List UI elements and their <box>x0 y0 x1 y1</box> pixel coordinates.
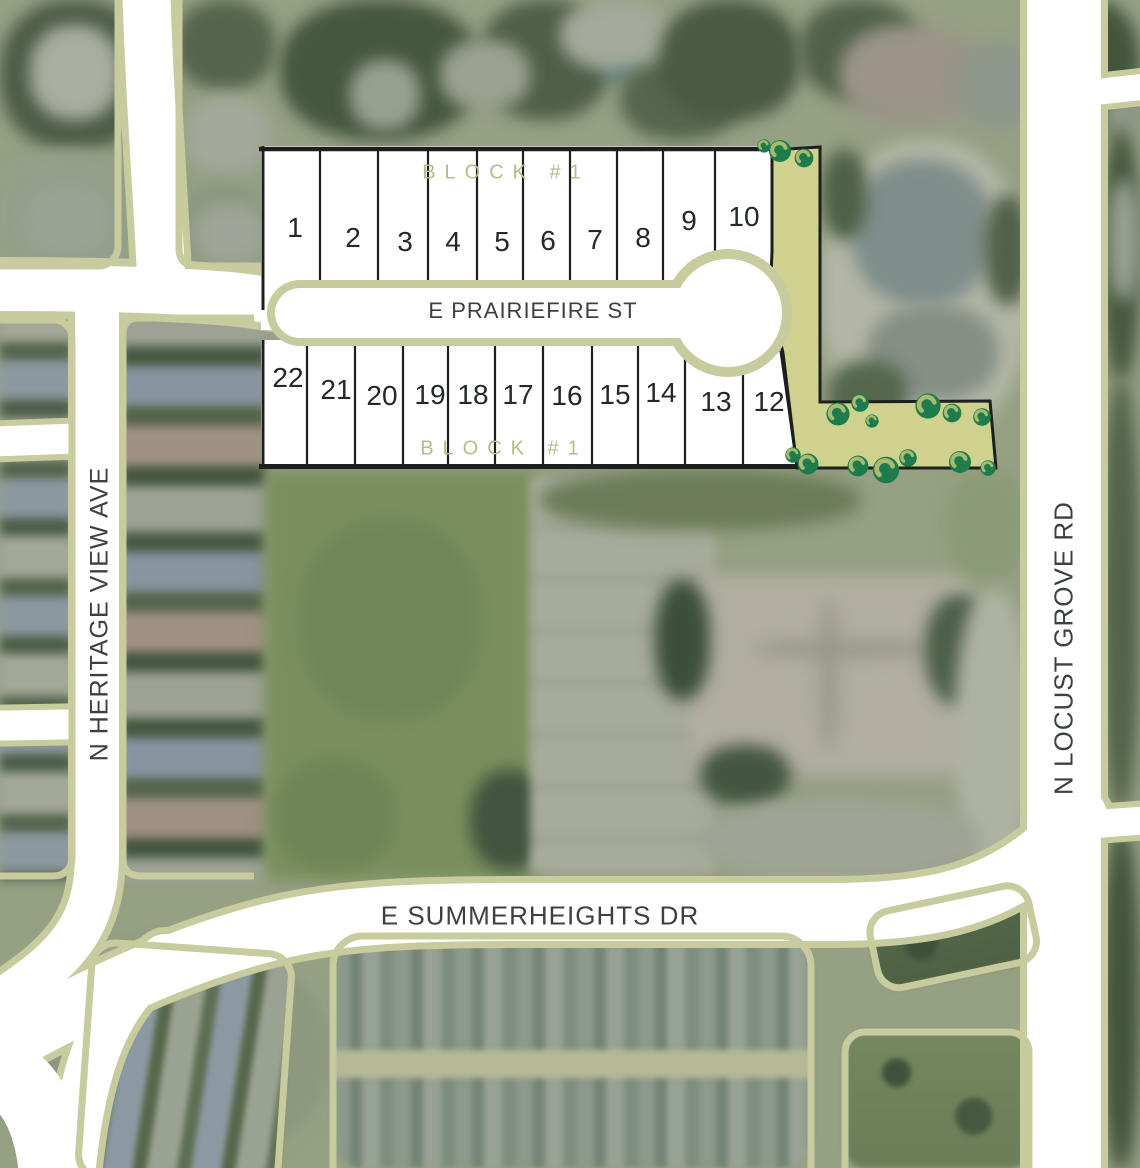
lot-number: 1 <box>287 212 303 244</box>
lot-number: 2 <box>345 222 361 254</box>
lot-number: 10 <box>728 201 759 233</box>
block-outline-west <box>0 320 72 876</box>
block-outline-north <box>179 0 262 266</box>
block-label-top: BLOCK #1 <box>422 162 590 185</box>
plat-map: BLOCK #1 BLOCK #1 E PRAIRIEFIRE ST E SUM… <box>0 0 1140 1168</box>
lot-number: 14 <box>645 377 676 409</box>
lot-number: 21 <box>320 374 351 406</box>
block-outline-nw <box>0 0 118 266</box>
lot-number: 19 <box>414 379 445 411</box>
street-label-heritage-view: N HERITAGE VIEW AVE <box>86 467 115 762</box>
block-outline-heritage-strip <box>123 318 254 876</box>
landscape-buffer <box>770 147 996 468</box>
lot-number: 9 <box>681 205 697 237</box>
lot-number: 20 <box>366 380 397 412</box>
lot-number: 7 <box>587 224 603 256</box>
street-label-locust-grove: N LOCUST GROVE RD <box>1049 501 1080 795</box>
lot-number: 15 <box>599 379 630 411</box>
street-sw-corner-fill <box>0 1062 55 1168</box>
lot-number: 22 <box>272 362 303 394</box>
street-label-summerheights: E SUMMERHEIGHTS DR <box>381 901 699 932</box>
lot-number: 4 <box>445 226 461 258</box>
block-outline-south <box>333 936 811 1168</box>
lot-number: 8 <box>635 222 651 254</box>
block-outline-se <box>845 1032 1029 1168</box>
lot-number: 13 <box>700 386 731 418</box>
lot-number: 18 <box>457 379 488 411</box>
lot-number: 3 <box>397 226 413 258</box>
lot-number: 12 <box>753 386 784 418</box>
street-label-prairiefire: E PRAIRIEFIRE ST <box>428 298 637 324</box>
lot-number: 17 <box>502 379 533 411</box>
block-label-bottom: BLOCK #1 <box>420 438 588 461</box>
lot-number: 16 <box>551 380 582 412</box>
lot-number: 5 <box>494 226 510 258</box>
lot-number: 6 <box>540 225 556 257</box>
